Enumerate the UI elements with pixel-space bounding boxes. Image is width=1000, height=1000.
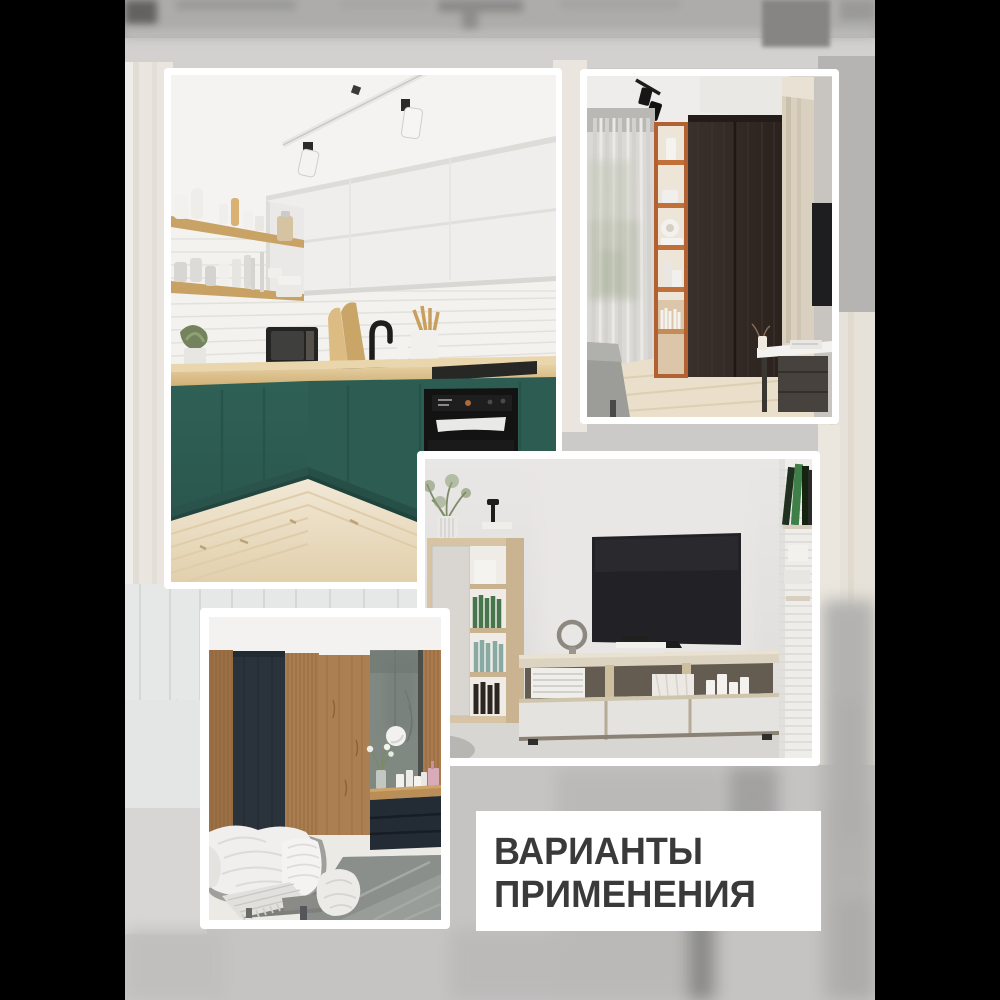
svg-text:ВАРИАНТЫ: ВАРИАНТЫ	[494, 831, 703, 873]
svg-text:ПРИМЕНЕНИЯ: ПРИМЕНЕНИЯ	[494, 874, 756, 916]
